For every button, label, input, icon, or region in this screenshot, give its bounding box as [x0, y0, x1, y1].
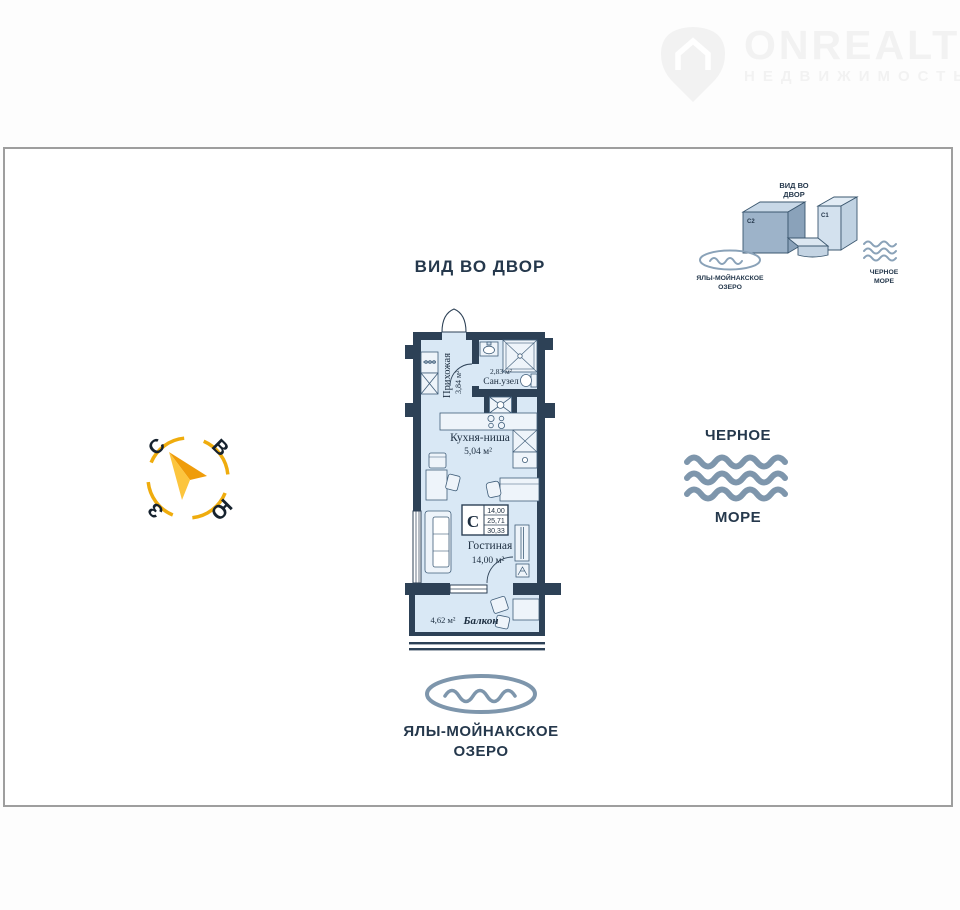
kitchen-area: 5,04 м²	[464, 447, 492, 457]
flat-type-letter: С	[467, 512, 479, 531]
compass-west: З	[144, 498, 168, 522]
balcony-area: 4,62 м²	[431, 615, 456, 625]
balcony-label: Балкон	[463, 615, 499, 627]
lake-label-line2: ОЗЕРО	[398, 742, 564, 762]
area-value-2: 25,71	[487, 518, 505, 525]
sofa	[425, 511, 451, 573]
logo-pin-icon	[656, 24, 730, 104]
living-label: Гостиная	[468, 540, 513, 552]
logo-text: ONREALT НЕДВИЖИМОСТЬ	[744, 24, 960, 85]
site-plan-title-line1: ВИД ВО	[779, 181, 808, 190]
floorplan: С 14,00 25,71 30,33 Прихожая	[400, 306, 566, 662]
black-sea-block: ЧЕРНОЕ МОРЕ	[676, 426, 800, 528]
sea-label-line1: ЧЕРНОЕ	[676, 426, 800, 446]
toilet	[521, 374, 538, 387]
entry-door-arc	[442, 309, 466, 332]
lake-icon	[423, 672, 539, 716]
page: ONREALT НЕДВИЖИМОСТЬ ВИД ВО ДВОР C2 C1	[0, 0, 960, 910]
kitchen-counter	[440, 413, 537, 430]
onrealt-logo: ONREALT НЕДВИЖИМОСТЬ	[656, 24, 960, 104]
building-c1: C1	[818, 197, 857, 250]
hallway-label: Прихожая	[442, 353, 453, 398]
kitchen-sink-unit	[513, 430, 537, 468]
compass-south: Ю	[206, 494, 236, 524]
site-plan-title-line2: ДВОР	[783, 190, 804, 199]
compass-north: С	[144, 434, 170, 460]
building-c1-label: C1	[821, 213, 829, 219]
building-c2-label: C2	[747, 219, 755, 225]
mini-lake-label-line1: ЯЛЫ-МОЙНАКСКОЕ	[696, 273, 764, 282]
hallway-area: 3,84 м²	[454, 370, 463, 394]
mini-sea-label-line2: МОРЕ	[874, 278, 894, 285]
area-value-1: 14,00	[487, 508, 505, 515]
compass-needle-icon	[169, 452, 207, 500]
mini-waves-icon	[864, 242, 896, 261]
courtyard-view-label: ВИД ВО ДВОР	[390, 257, 570, 277]
sea-waves-icon	[682, 452, 794, 504]
mini-lake-label-line2: ОЗЕРО	[718, 284, 742, 291]
mini-lake-icon	[700, 251, 760, 270]
living-area: 14,00 м²	[472, 556, 505, 566]
compass-east: В	[207, 435, 233, 461]
logo-brand: ONREALT	[744, 24, 960, 66]
lake-block: ЯЛЫ-МОЙНАКСКОЕ ОЗЕРО	[398, 672, 564, 762]
bathroom-area: 2,83 м²	[490, 367, 513, 376]
hallway-wardrobe	[421, 352, 438, 394]
area-value-3: 30,33	[487, 528, 505, 535]
site-plan-diagram: ВИД ВО ДВОР C2 C1 ЯЛЫ-МОЙНАКСКОЕ ОЗЕРО	[688, 172, 906, 296]
sea-label-line2: МОРЕ	[676, 508, 800, 528]
compass-rose: С В Ю З	[133, 420, 243, 538]
bathroom-label: Сан.узел	[483, 377, 519, 387]
bathroom-sink	[480, 342, 498, 356]
mini-sea-label-line1: ЧЕРНОЕ	[870, 269, 899, 276]
washing-machine	[490, 397, 512, 413]
logo-tagline: НЕДВИЖИМОСТЬ	[744, 68, 960, 85]
building-c2: C2	[743, 202, 805, 253]
area-info-box: С 14,00 25,71 30,33	[462, 505, 508, 535]
living-wardrobe	[515, 525, 529, 577]
kitchen-label: Кухня-ниша	[450, 432, 510, 444]
lake-label-line1: ЯЛЫ-МОЙНАКСКОЕ	[398, 722, 564, 742]
